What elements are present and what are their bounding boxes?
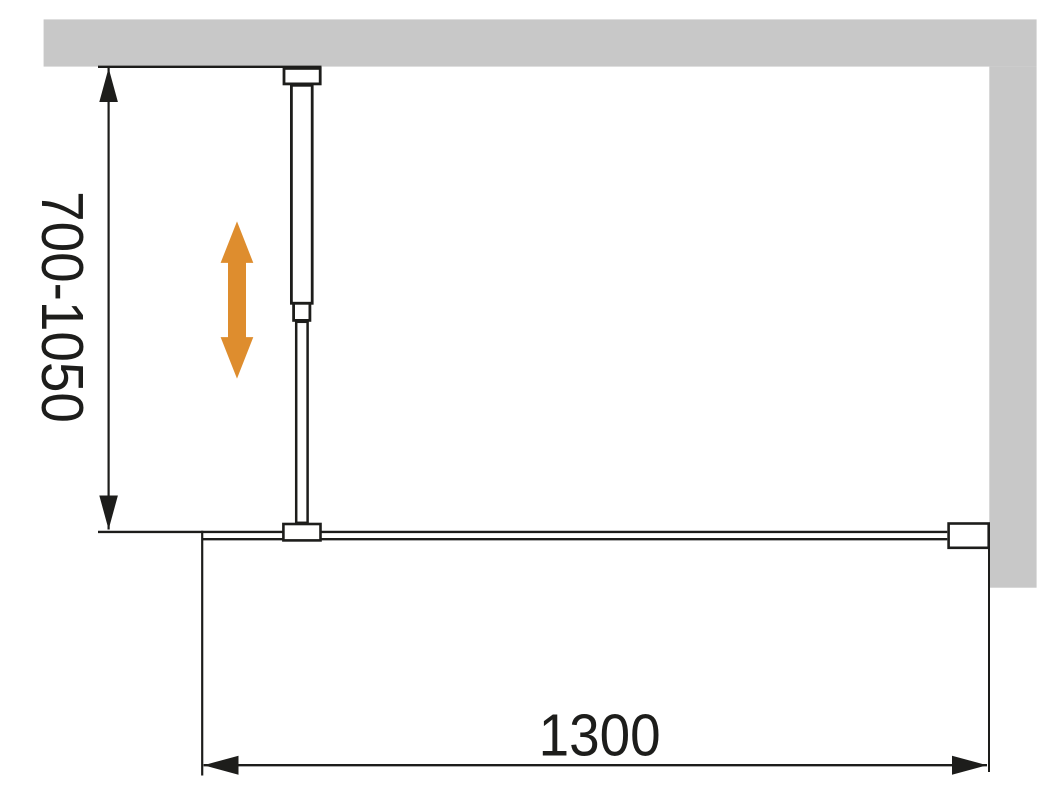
svg-text:1300: 1300 <box>539 703 661 769</box>
svg-text:700-1050: 700-1050 <box>29 191 95 423</box>
